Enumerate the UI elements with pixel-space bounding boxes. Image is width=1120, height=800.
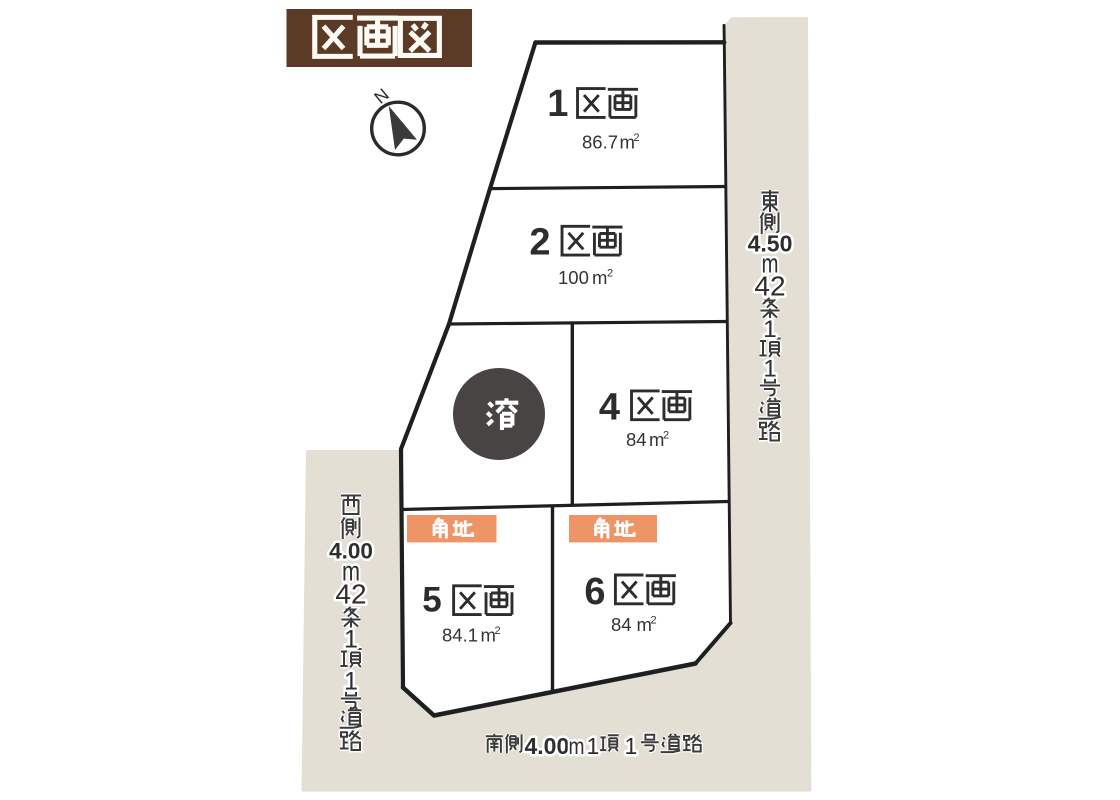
svg-text:2: 2 <box>495 625 501 637</box>
svg-text:1: 1 <box>587 733 600 759</box>
svg-text:1: 1 <box>344 626 358 654</box>
svg-text:1: 1 <box>547 83 568 125</box>
svg-text:100: 100 <box>558 267 589 288</box>
svg-text:m: m <box>569 733 585 759</box>
svg-text:2: 2 <box>607 268 613 280</box>
svg-text:1: 1 <box>763 316 777 343</box>
svg-text:4.00: 4.00 <box>525 733 570 759</box>
svg-text:6: 6 <box>584 571 605 613</box>
svg-text:2: 2 <box>529 222 550 264</box>
svg-text:86.7: 86.7 <box>582 132 618 153</box>
svg-text:1: 1 <box>763 356 776 383</box>
svg-text:4: 4 <box>599 387 620 429</box>
svg-text:m: m <box>592 267 607 288</box>
svg-text:42: 42 <box>754 271 785 302</box>
svg-text:84: 84 <box>626 429 647 450</box>
svg-text:2: 2 <box>663 430 669 442</box>
svg-text:2: 2 <box>634 132 640 144</box>
svg-text:1: 1 <box>344 668 358 696</box>
svg-text:1: 1 <box>625 733 638 759</box>
svg-text:2: 2 <box>651 615 657 627</box>
svg-text:42: 42 <box>335 579 366 610</box>
svg-text:84: 84 <box>611 614 632 635</box>
svg-text:84.1: 84.1 <box>442 625 478 646</box>
svg-text:5: 5 <box>422 581 441 620</box>
